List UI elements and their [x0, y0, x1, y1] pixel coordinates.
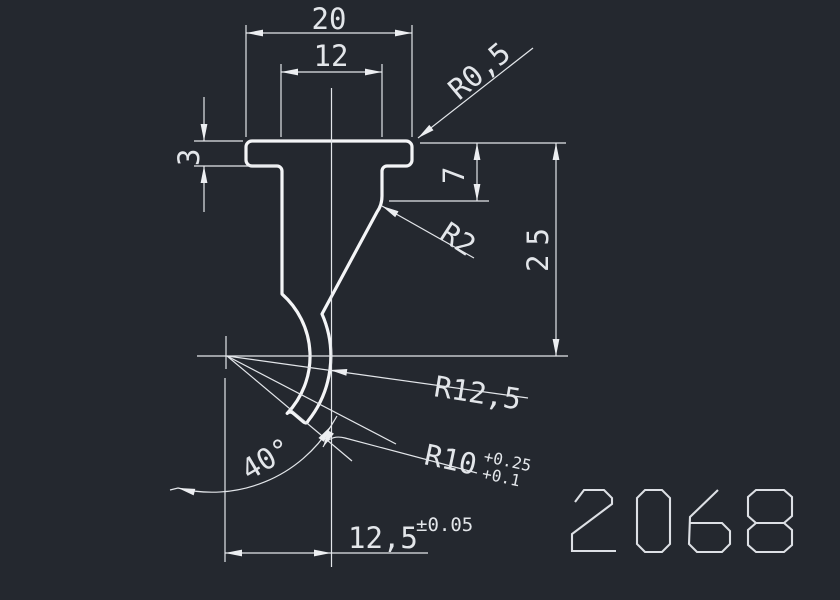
dim-arrow-up	[553, 143, 560, 160]
dim-body-height: 25	[521, 143, 559, 356]
digit-2	[572, 490, 616, 551]
dim-shoulder-depth: 7	[389, 143, 566, 201]
dim-arrow-up	[474, 143, 481, 160]
cad-drawing-canvas: 20 12 3 R0,5 7 25	[0, 0, 840, 600]
dim-arrow-left	[246, 30, 263, 37]
dim-arrow-down	[474, 184, 481, 201]
leader-arrow	[380, 203, 398, 217]
leader-label-r05: R0,5	[442, 35, 517, 106]
leader-label-r2: R2	[434, 215, 482, 263]
dim-tolerance-tip-offset: ±0.05	[416, 514, 473, 536]
digit-6	[689, 490, 730, 552]
drawing-number	[572, 490, 792, 552]
dim-arrow-right	[365, 69, 382, 76]
leader-label-r125: R12,5	[432, 369, 524, 416]
dim-flange-thickness: 3	[172, 97, 278, 212]
dim-arrow-down	[553, 339, 560, 356]
dim-label-body-height: 25	[521, 219, 555, 272]
dim-arrow-down	[201, 124, 208, 141]
dim-arrow-right	[314, 550, 331, 557]
dim-label-shank-width: 12	[314, 39, 349, 73]
dim-label-top-width: 20	[312, 2, 347, 36]
tip-face-extension-line	[227, 356, 352, 461]
dim-arrow-left	[281, 69, 298, 76]
digit-8	[748, 490, 792, 552]
radius-ray	[227, 356, 396, 444]
dim-arrow-right	[395, 30, 412, 37]
leader-outer-blade-radius: R12,5	[227, 356, 528, 417]
leader-label-r10: R10	[422, 438, 480, 482]
dim-arrow-up	[201, 166, 208, 183]
dim-label-tip-offset: 12,5	[348, 521, 418, 555]
leader-flange-corner-radius: R0,5	[416, 35, 533, 140]
dim-label-flange-thickness: 3	[172, 149, 206, 166]
leader-shoulder-fillet: R2	[380, 203, 482, 263]
dim-arrow-left	[177, 485, 195, 496]
dim-label-shoulder-depth: 7	[437, 167, 471, 184]
cad-drawing: 20 12 3 R0,5 7 25	[0, 0, 840, 600]
dim-label-tip-angle: 40°	[235, 431, 297, 487]
punch-profile-outline	[246, 141, 412, 423]
digit-0	[637, 490, 670, 552]
leader-tip-radius: R10 +0.25 +0.1	[320, 430, 533, 493]
dim-arrow-left	[225, 550, 242, 557]
